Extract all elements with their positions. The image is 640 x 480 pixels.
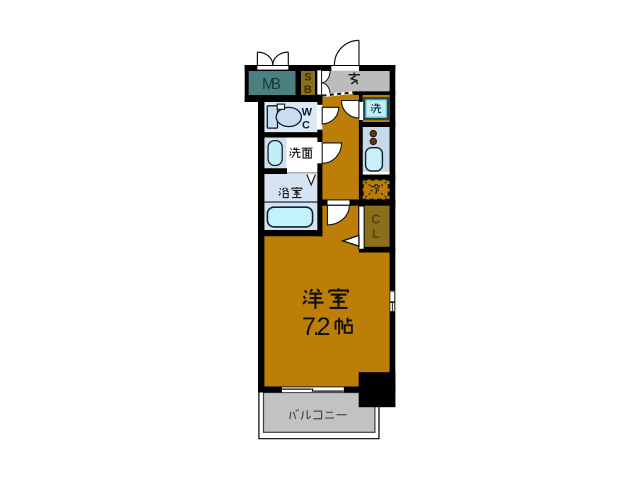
svg-text:C: C — [302, 119, 310, 131]
svg-text:7.2: 7.2 — [302, 313, 331, 341]
svg-text:MB: MB — [262, 76, 281, 93]
svg-text:W: W — [302, 106, 313, 118]
svg-text:L: L — [372, 227, 380, 241]
svg-text:S: S — [304, 72, 311, 84]
svg-text:C: C — [371, 213, 380, 227]
svg-text:B: B — [304, 84, 312, 96]
